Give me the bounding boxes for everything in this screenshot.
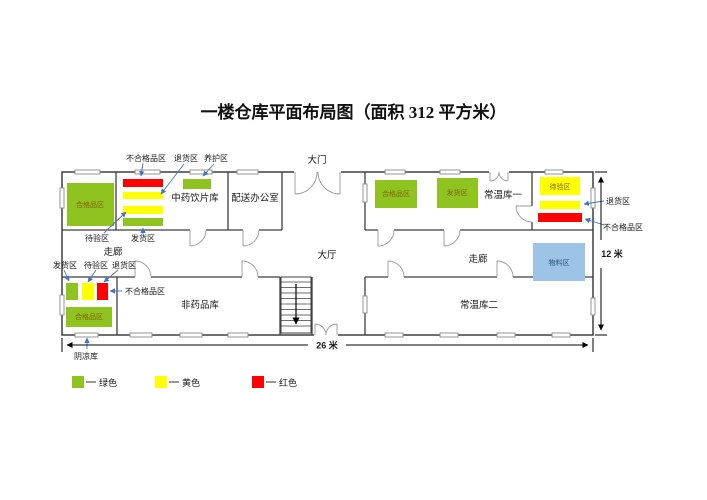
staircase (281, 277, 311, 333)
care-zone-box (183, 179, 211, 189)
main-gate-label: 大门 (307, 154, 326, 166)
width-dimension-label: 26 米 (316, 340, 339, 351)
delivery-office-label: 配送办公室 (231, 192, 279, 204)
legend-label-red: 红色 (279, 377, 297, 388)
return-bar (540, 201, 580, 209)
corridor-right-label: 走廊 (468, 253, 488, 265)
page: 一楼仓库平面布局图（面积 312 平方米） (0, 0, 707, 500)
dimension-width: 26 米 (62, 338, 593, 352)
return-label: 退货区 (606, 196, 630, 206)
return-label: 退货区 (112, 260, 136, 270)
legend-label-green: 绿色 (99, 377, 117, 388)
floor-plan: 合格品区 不合格品区 退货区 养护区 待验区 发货区 合格品区 (0, 0, 707, 500)
unqualified-bar (123, 179, 163, 187)
non-drug-label: 非药品库 (181, 299, 220, 311)
legend-swatch-yellow (155, 376, 167, 388)
qualified-zone-label: 合格品区 (76, 200, 104, 209)
await-zone-label: 待验区 (550, 182, 571, 191)
unqualified-label: 不合格品区 (126, 153, 166, 163)
cool-store-label: 阴凉库 (74, 351, 98, 361)
material-zone: 物料区 (533, 243, 585, 281)
legend-swatch-green (72, 376, 84, 388)
legend-label-yellow: 黄色 (182, 377, 200, 388)
unqualified-label: 不合格品区 (603, 222, 643, 232)
main-gate-opening (294, 170, 341, 175)
ship-label: 发货区 (131, 233, 155, 243)
unqualified-bar (538, 213, 582, 222)
legend-swatch-red (252, 376, 264, 388)
hall-label: 大厅 (317, 249, 337, 261)
ship-box (66, 283, 78, 300)
normal-temp-2-label: 常温库二 (460, 299, 498, 311)
await-label: 待验区 (85, 233, 109, 243)
height-dimension-label: 12 米 (601, 248, 624, 259)
qualified-zone-label: 合格品区 (75, 312, 103, 321)
qualified-zone-label: 合格品区 (382, 189, 410, 198)
material-zone-label: 物料区 (549, 258, 570, 267)
color-legend: 绿色 黄色 红色 (72, 376, 297, 388)
unqualified-label: 不合格品区 (125, 286, 165, 296)
ship-label: 发货区 (53, 260, 77, 270)
return-label: 退货区 (174, 153, 198, 163)
normal-temp-1-label: 常温库一 (484, 189, 523, 201)
await-label: 待验区 (84, 260, 108, 270)
return-bar (123, 192, 163, 199)
await-bar (123, 206, 163, 214)
unqualified-box (97, 283, 108, 300)
care-label: 养护区 (204, 153, 228, 163)
ship-bar (123, 218, 163, 226)
await-box (82, 283, 94, 300)
herb-store-label: 中药饮片库 (171, 192, 219, 204)
ship-zone-label: 发货区 (447, 188, 468, 197)
corridor-left-label: 走廊 (103, 246, 123, 258)
